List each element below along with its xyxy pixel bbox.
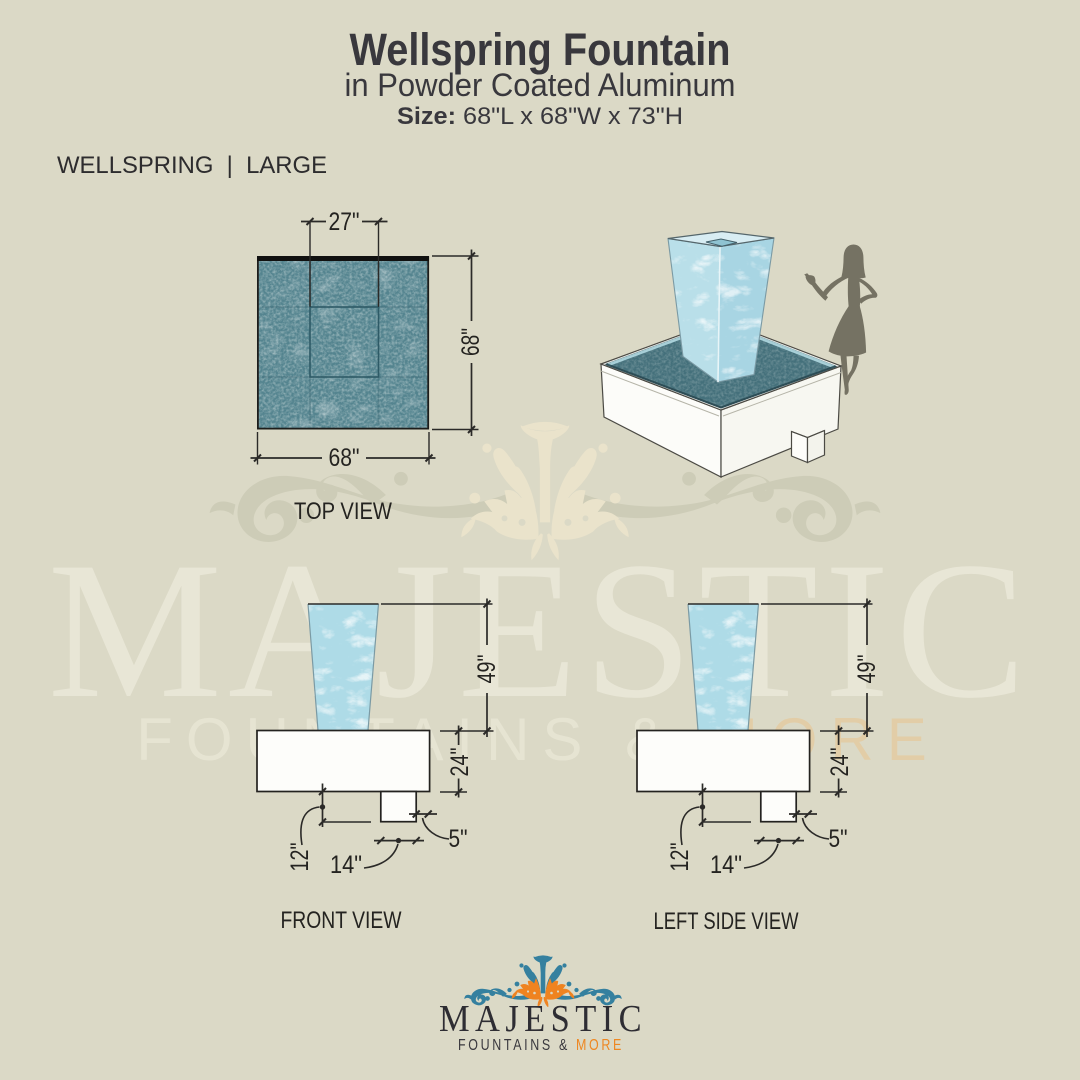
svg-text:MAJESTIC: MAJESTIC [439, 998, 647, 1040]
svg-text:49": 49" [473, 655, 501, 684]
svg-text:FOUNTAINS & MORE: FOUNTAINS & MORE [458, 1037, 624, 1054]
svg-text:27": 27" [329, 208, 360, 236]
svg-text:14": 14" [330, 851, 362, 879]
svg-text:12": 12" [286, 843, 314, 872]
svg-text:TOP VIEW: TOP VIEW [294, 498, 392, 525]
svg-text:68": 68" [457, 328, 485, 356]
svg-text:in Powder Coated Aluminum: in Powder Coated Aluminum [345, 67, 736, 103]
svg-text:WELLSPRING | LARGE: WELLSPRING | LARGE [57, 152, 327, 179]
svg-text:LEFT SIDE VIEW: LEFT SIDE VIEW [654, 908, 799, 935]
svg-text:Size: 68"L x 68"W x 73"H: Size: 68"L x 68"W x 73"H [397, 103, 683, 130]
svg-text:24": 24" [446, 748, 474, 777]
svg-text:68": 68" [329, 444, 360, 472]
svg-text:5": 5" [449, 825, 468, 853]
svg-text:FRONT VIEW: FRONT VIEW [281, 907, 402, 934]
